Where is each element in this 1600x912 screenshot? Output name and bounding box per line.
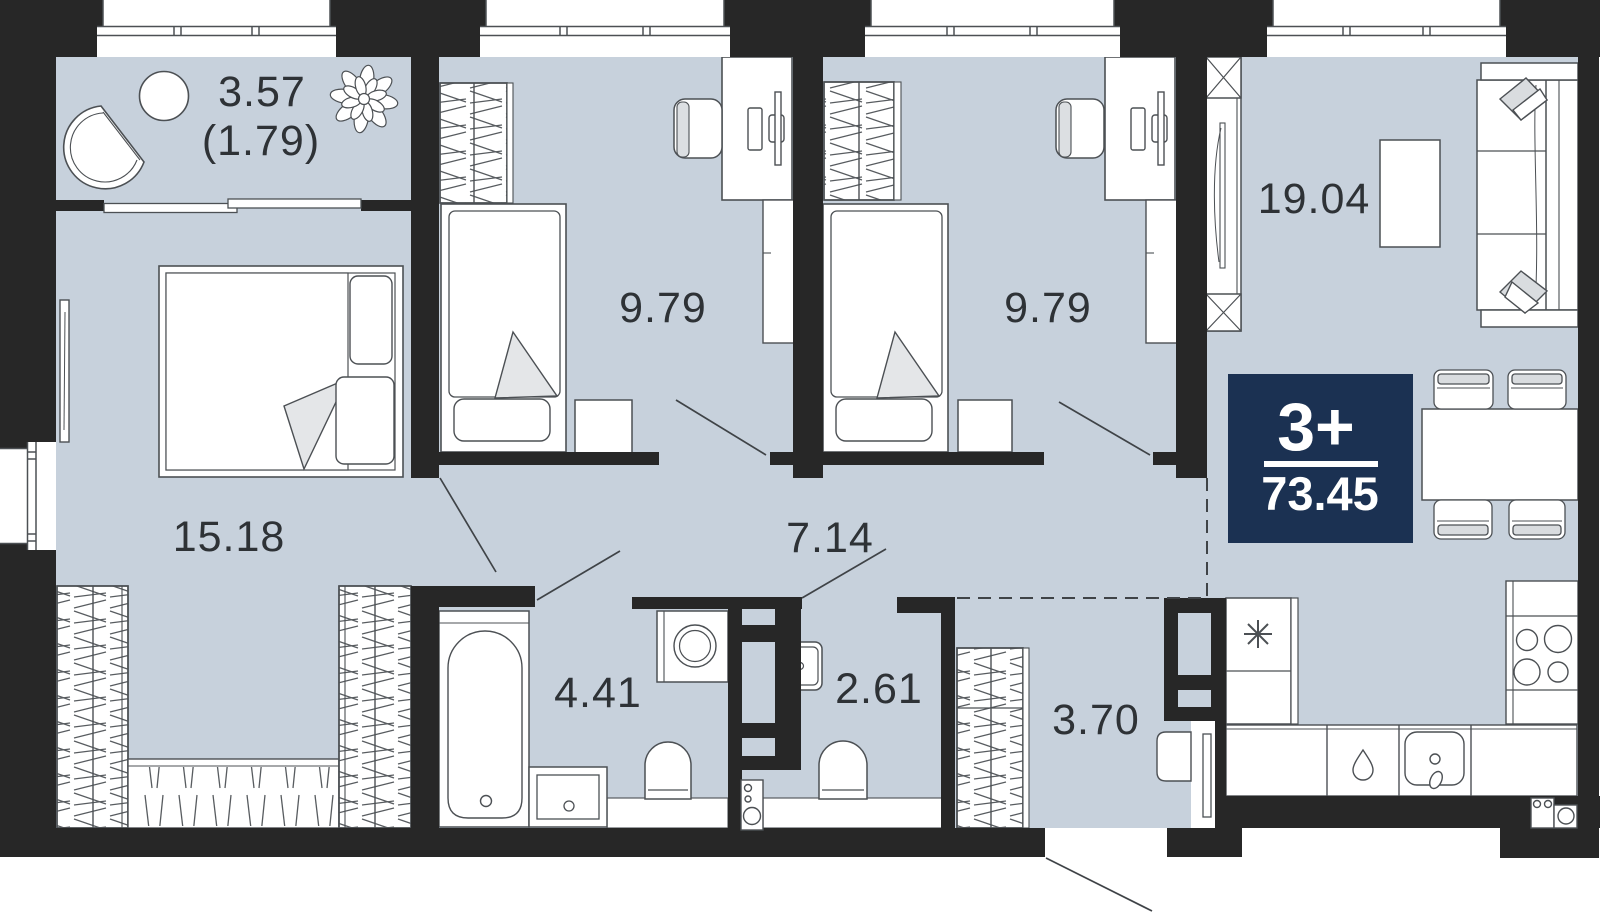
svg-text:9.79: 9.79 bbox=[1004, 284, 1092, 332]
svg-text:3.57: 3.57 bbox=[218, 68, 306, 116]
svg-text:4.41: 4.41 bbox=[554, 669, 642, 717]
svg-text:19.04: 19.04 bbox=[1258, 175, 1371, 223]
svg-text:(1.79): (1.79) bbox=[202, 117, 320, 165]
svg-text:7.14: 7.14 bbox=[786, 514, 874, 562]
svg-text:9.79: 9.79 bbox=[619, 284, 707, 332]
svg-text:3+: 3+ bbox=[1277, 389, 1355, 465]
svg-text:3.70: 3.70 bbox=[1052, 696, 1140, 744]
svg-text:73.45: 73.45 bbox=[1261, 467, 1379, 520]
svg-text:15.18: 15.18 bbox=[173, 513, 286, 561]
svg-text:2.61: 2.61 bbox=[835, 665, 923, 713]
